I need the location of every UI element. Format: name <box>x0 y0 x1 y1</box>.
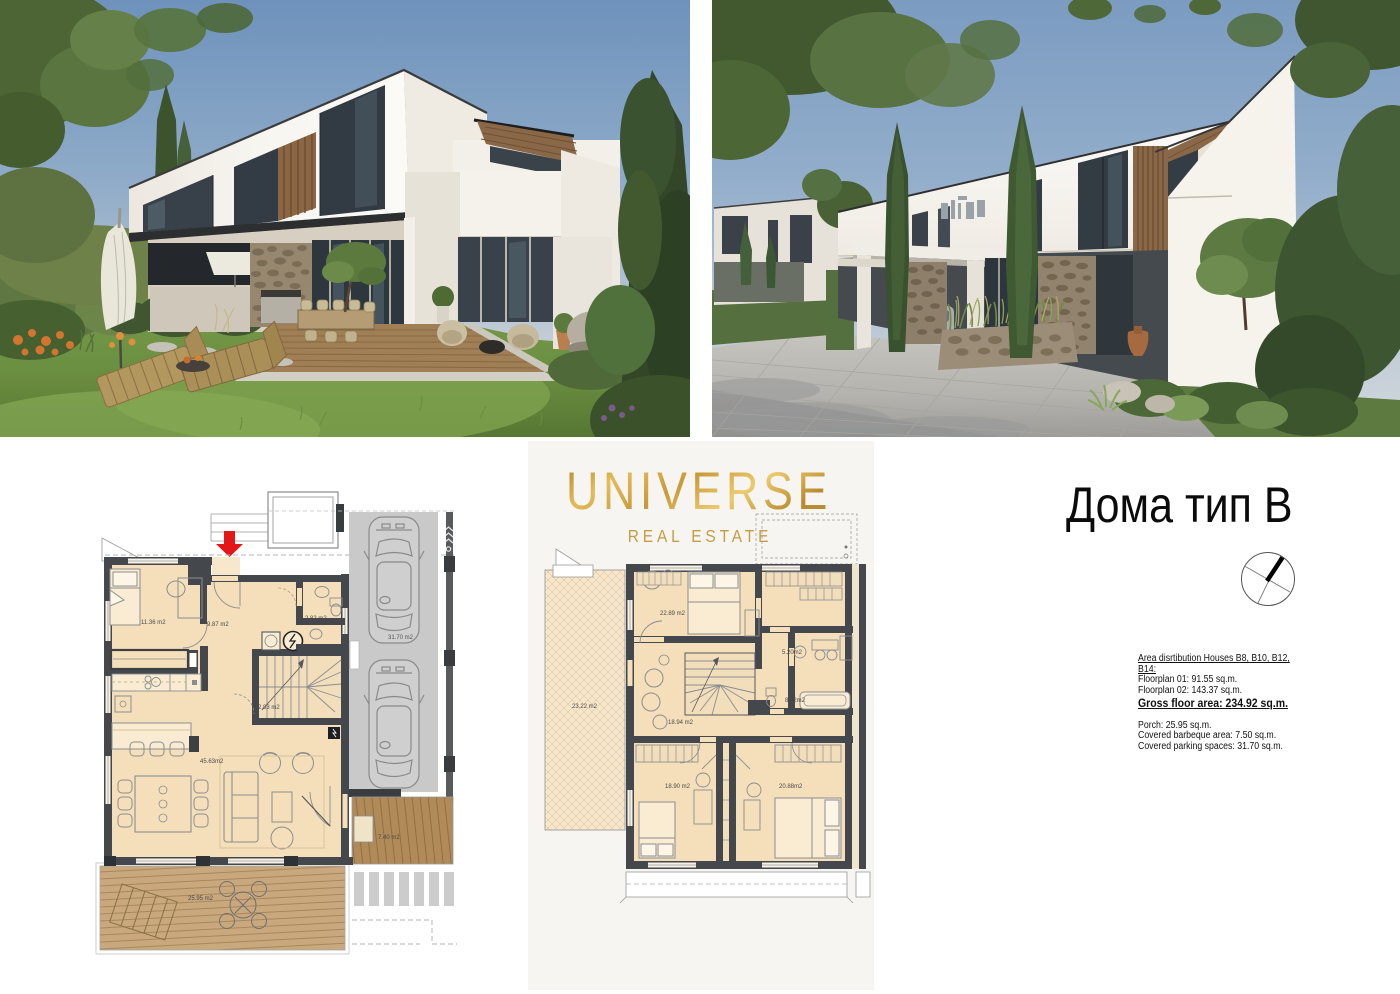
svg-text:2.83 m2: 2.83 m2 <box>258 705 280 711</box>
svg-text:9.87 m2: 9.87 m2 <box>207 622 229 628</box>
svg-text:23.22 m2: 23.22 m2 <box>572 704 598 710</box>
svg-text:11.36 m2: 11.36 m2 <box>141 620 166 626</box>
svg-text:25.95 m2: 25.95 m2 <box>188 896 214 902</box>
svg-text:20.88m2: 20.88m2 <box>779 784 803 790</box>
svg-text:18.90 m2: 18.90 m2 <box>665 784 691 790</box>
svg-text:18.94 m2: 18.94 m2 <box>668 720 694 726</box>
svg-text:2.82 m2: 2.82 m2 <box>305 616 327 622</box>
svg-text:5.20m2: 5.20m2 <box>782 650 803 656</box>
svg-text:22.89 m2: 22.89 m2 <box>660 611 686 617</box>
svg-text:7.40 m2: 7.40 m2 <box>378 835 400 841</box>
svg-text:45.63m2: 45.63m2 <box>200 759 224 765</box>
svg-text:8.82m2: 8.82m2 <box>785 698 806 704</box>
svg-text:UNIVERSE: UNIVERSE <box>566 463 832 521</box>
svg-text:REAL ESTATE: REAL ESTATE <box>628 526 773 546</box>
svg-text:31.70 m2: 31.70 m2 <box>388 635 414 641</box>
